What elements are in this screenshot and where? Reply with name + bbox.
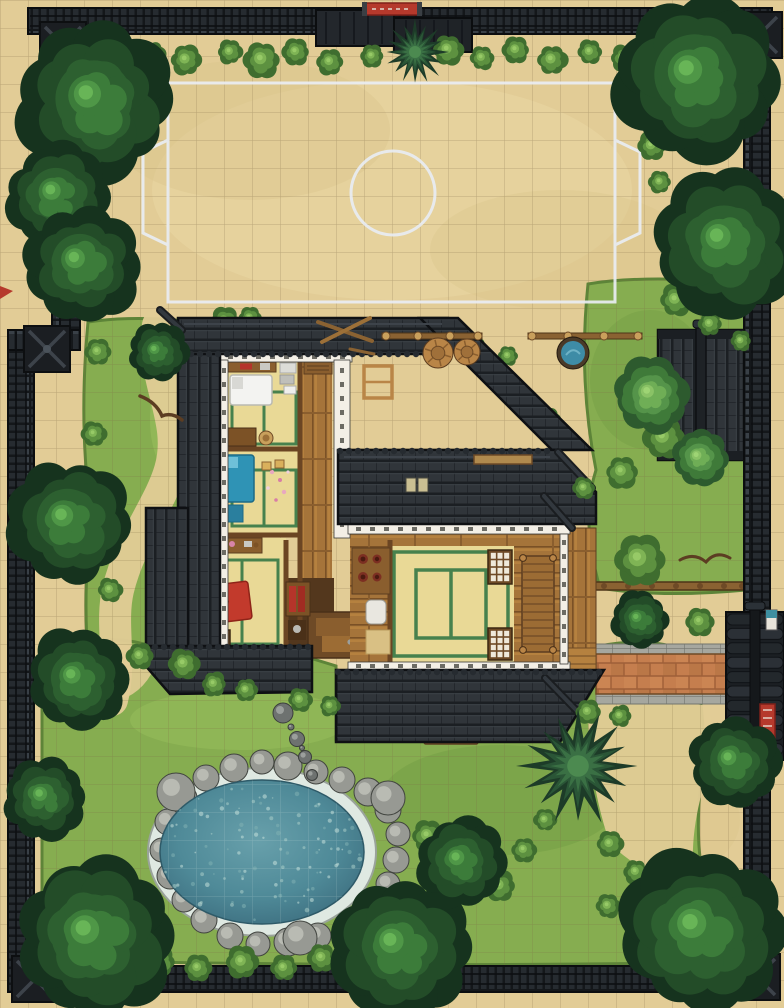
canopy-highlight [633, 614, 638, 619]
bush-highlight [327, 703, 330, 706]
kitchen-stove [352, 548, 390, 594]
tile-cap [499, 448, 505, 454]
bush-highlight [369, 53, 373, 57]
rack-knob [600, 332, 608, 340]
tile-cap [413, 351, 419, 357]
canopy-highlight [710, 228, 723, 241]
rock-highlight [278, 756, 291, 769]
tile-cap [382, 448, 388, 454]
bush-highlight [738, 338, 741, 341]
shoji-screen [488, 550, 512, 584]
tile-cap [152, 644, 158, 650]
fence-post [697, 583, 703, 589]
tile-cap [260, 351, 266, 357]
tile-cap [233, 644, 239, 650]
canopy-highlight [679, 60, 694, 75]
tile-cap [436, 448, 442, 454]
bush [360, 45, 383, 68]
tile-cap [479, 669, 485, 675]
bush-highlight [605, 902, 609, 906]
bush-highlight [182, 56, 187, 61]
bush-highlight [585, 708, 589, 712]
tile-cap [278, 644, 284, 650]
tile-cap [560, 669, 566, 675]
tile-cap [391, 448, 397, 454]
bush-highlight [297, 696, 301, 700]
weapon-rack [528, 333, 642, 339]
tile-cap [335, 669, 341, 675]
tile-cap [386, 351, 392, 357]
tile-cap [287, 351, 293, 357]
tile-cap [542, 669, 548, 675]
bush-highlight [581, 485, 585, 489]
bush-highlight [211, 680, 215, 684]
canopy-highlight [35, 789, 43, 797]
weapon-rack [382, 333, 482, 339]
stone-highlight [301, 752, 306, 757]
stepping-stone [307, 770, 318, 781]
tile-cap [578, 669, 584, 675]
bush-highlight [257, 55, 263, 61]
pine-core [409, 46, 421, 58]
tile-cap [353, 669, 359, 675]
canopy-highlight [79, 85, 93, 99]
rock-highlight [195, 911, 207, 923]
tile-cap [454, 448, 460, 454]
canopy-highlight [69, 252, 79, 262]
tile-cap [463, 448, 469, 454]
tile-cap [215, 351, 221, 357]
bush-highlight [238, 957, 243, 962]
tile-cap [488, 669, 494, 675]
canopy-highlight [724, 752, 732, 760]
tile-cap [416, 669, 422, 675]
cloth-sack [366, 600, 386, 624]
rock-highlight [333, 771, 345, 783]
bush-highlight [94, 348, 98, 352]
tile-cap [269, 644, 275, 650]
east-engawa [568, 528, 596, 650]
path-slab-north [596, 644, 746, 654]
tile-cap [461, 669, 467, 675]
east-steps [568, 648, 596, 672]
canopy-highlight [694, 452, 699, 457]
tile-cap [452, 669, 458, 675]
tile-cap [517, 448, 523, 454]
water-tub [557, 337, 589, 369]
tile-cap [380, 669, 386, 675]
tile-cap [346, 448, 352, 454]
bush-highlight [227, 48, 231, 52]
bush-highlight [292, 48, 296, 52]
bush-highlight [444, 46, 449, 51]
rock-highlight [163, 779, 180, 796]
tile-cap [224, 644, 230, 650]
stone-highlight [276, 706, 284, 714]
tile-cap [497, 669, 503, 675]
tile-cap [434, 669, 440, 675]
bush-highlight [243, 687, 247, 691]
tile-cap [206, 644, 212, 650]
tile-cap [188, 644, 194, 650]
bush-highlight [180, 660, 185, 665]
tile-cap [377, 351, 383, 357]
blob [561, 341, 585, 365]
tile-cap [373, 448, 379, 454]
tile-cap [350, 351, 356, 357]
tile-cap [418, 448, 424, 454]
tile-cap [206, 351, 212, 357]
tile-cap [587, 669, 593, 675]
stepping-stone [299, 751, 312, 764]
training-barrel [454, 339, 480, 365]
bush-highlight [618, 467, 623, 472]
tile-cap [305, 644, 311, 650]
canopy-highlight [383, 933, 396, 946]
tile-cap [596, 669, 602, 675]
tile-cap [533, 669, 539, 675]
bush-highlight [479, 54, 483, 58]
tile-cap [535, 448, 541, 454]
bush-highlight [606, 840, 610, 844]
hall-stairs [520, 555, 557, 654]
tile-cap [233, 351, 239, 357]
stone-highlight [292, 734, 298, 740]
blob [431, 346, 445, 360]
tile-cap [362, 669, 368, 675]
bush-highlight [424, 831, 429, 836]
tile-cap [269, 351, 275, 357]
path-slab-south [596, 694, 746, 704]
rack-knob [474, 332, 482, 340]
rack-knob [446, 332, 454, 340]
canopy-highlight [55, 509, 67, 521]
bush-highlight [326, 58, 330, 62]
corner-post [24, 326, 70, 372]
rack-knob [528, 332, 536, 340]
bush-highlight [512, 46, 516, 50]
rock-highlight [376, 786, 391, 801]
stair-post [520, 647, 527, 654]
rock-highlight [250, 936, 261, 947]
roof-ridge-beam [474, 455, 532, 464]
tile-cap [278, 351, 284, 357]
stone-highlight [289, 725, 291, 727]
canopy-highlight [151, 346, 156, 351]
tile-cap [481, 448, 487, 454]
pine-core [567, 755, 589, 777]
bush-highlight [521, 846, 525, 850]
tile-cap [506, 669, 512, 675]
tile-cap [251, 351, 257, 357]
tile-cap [470, 669, 476, 675]
tile-cap [170, 644, 176, 650]
blob [461, 346, 473, 358]
tile-cap [551, 669, 557, 675]
stepping-stone [288, 724, 294, 730]
bush-highlight [657, 179, 661, 183]
tile-cap [197, 351, 203, 357]
tile-cap [314, 351, 320, 357]
stepping-stone [273, 703, 293, 723]
canopy-highlight [66, 669, 75, 678]
tile-cap [524, 669, 530, 675]
rock-highlight [390, 826, 401, 837]
tile-cap [490, 448, 496, 454]
canopy-highlight [46, 185, 56, 195]
tile-cap [341, 351, 347, 357]
small-mat [366, 630, 390, 654]
canopy-highlight [76, 920, 91, 935]
tile-cap [305, 351, 311, 357]
tile-cap [197, 644, 203, 650]
brick-path [596, 654, 746, 694]
tile-cap [398, 669, 404, 675]
bush-highlight [548, 56, 553, 61]
battle-map-screenshot [0, 0, 784, 1008]
fence-post [673, 583, 679, 589]
tile-cap [526, 448, 532, 454]
bush-highlight [707, 320, 711, 324]
tile-cap [569, 669, 575, 675]
tile-cap [296, 644, 302, 650]
bush-highlight [107, 586, 111, 590]
stair-post [550, 647, 557, 654]
bush-highlight [633, 868, 637, 872]
tile-cap [161, 644, 167, 650]
bush-highlight [542, 817, 546, 821]
bush-highlight [633, 552, 641, 560]
stone-highlight [300, 746, 302, 748]
fence-post [721, 583, 727, 589]
tile-cap [515, 669, 521, 675]
tile-cap [544, 448, 550, 454]
shoji-screen [488, 628, 512, 660]
tile-cap [296, 351, 302, 357]
bush-highlight [696, 618, 700, 622]
tile-cap [242, 351, 248, 357]
rack-knob [634, 332, 642, 340]
bush-highlight [617, 713, 621, 717]
canopy-highlight [643, 387, 650, 394]
rock-highlight [197, 769, 209, 781]
tile-cap [224, 351, 230, 357]
tile-cap [260, 644, 266, 650]
bush-highlight [194, 964, 198, 968]
fence-post [601, 583, 607, 589]
tile-cap [425, 669, 431, 675]
tile-cap [395, 351, 401, 357]
bush-highlight [318, 954, 322, 958]
tile-cap [472, 448, 478, 454]
tile-cap [407, 669, 413, 675]
bush-highlight [505, 353, 508, 356]
tile-cap [443, 669, 449, 675]
dojo-compound-map [0, 0, 784, 1008]
tile-cap [323, 351, 329, 357]
tile-cap [251, 644, 257, 650]
rock-highlight [387, 851, 399, 863]
tile-cap [364, 448, 370, 454]
tile-cap [242, 644, 248, 650]
rock-highlight [224, 758, 237, 771]
stepping-stone [290, 732, 305, 747]
rock-highlight [380, 876, 391, 887]
tile-cap [355, 448, 361, 454]
rock-highlight [358, 782, 371, 795]
tile-cap [409, 448, 415, 454]
rock-highlight [221, 927, 233, 939]
bush [614, 535, 665, 586]
tile-cap [404, 351, 410, 357]
tile-cap [215, 644, 221, 650]
tile-cap [400, 448, 406, 454]
canopy-highlight [452, 852, 460, 860]
tile-cap [508, 448, 514, 454]
bush-highlight [91, 430, 95, 434]
bush-highlight [672, 295, 677, 300]
rack-knob [414, 332, 422, 340]
tile-cap [445, 448, 451, 454]
stone-highlight [308, 771, 312, 775]
tile-cap [332, 351, 338, 357]
canopy-highlight [682, 914, 697, 929]
tile-cap [344, 669, 350, 675]
bush-highlight [280, 964, 284, 968]
rack-knob [382, 332, 390, 340]
rock-highlight [288, 926, 303, 941]
bush-highlight [136, 652, 140, 656]
tile-cap [427, 448, 433, 454]
tile-cap [287, 644, 293, 650]
rock-highlight [254, 754, 265, 765]
bush-highlight [587, 48, 591, 52]
stair-post [520, 555, 527, 562]
tile-cap [389, 669, 395, 675]
tile-cap [337, 448, 343, 454]
post-hub [43, 345, 51, 353]
training-barrel [423, 338, 453, 368]
stair-post [550, 555, 557, 562]
tile-cap [371, 669, 377, 675]
